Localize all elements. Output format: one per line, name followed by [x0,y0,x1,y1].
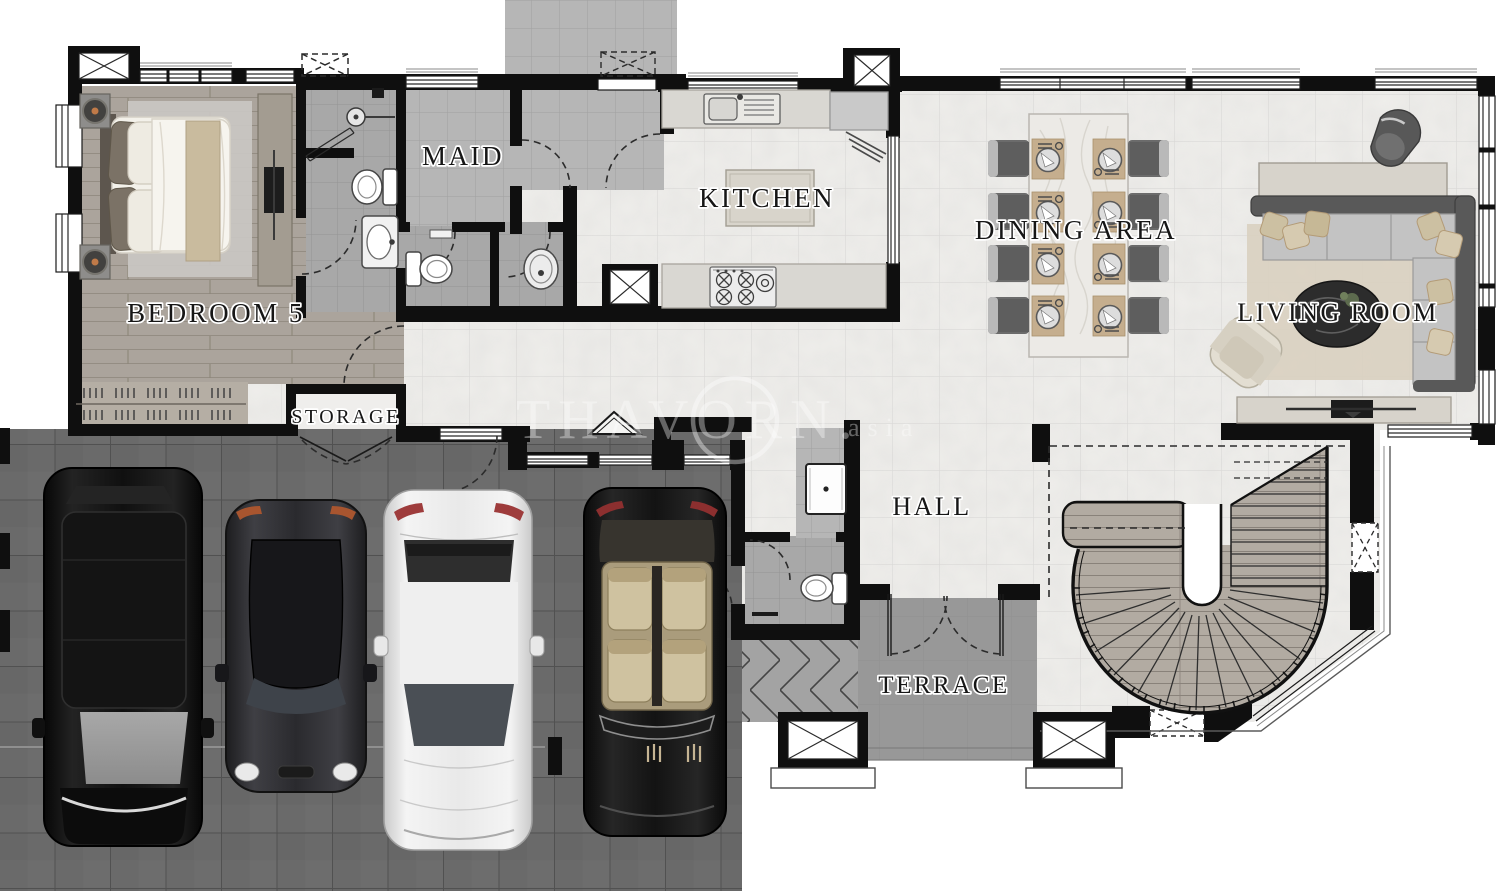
svg-text:THAVORN.: THAVORN. [516,389,861,451]
svg-text:KITCHEN: KITCHEN [699,183,835,213]
svg-text:LIVING ROOM: LIVING ROOM [1237,298,1439,327]
svg-text:HALL: HALL [892,492,971,521]
svg-text:asia: asia [848,413,920,442]
svg-text:DINING AREA: DINING AREA [975,215,1177,245]
svg-text:STORAGE: STORAGE [291,406,400,428]
svg-text:TERRACE: TERRACE [878,672,1009,699]
svg-text:MAID: MAID [422,141,504,171]
svg-text:BEDROOM 5: BEDROOM 5 [127,298,305,328]
